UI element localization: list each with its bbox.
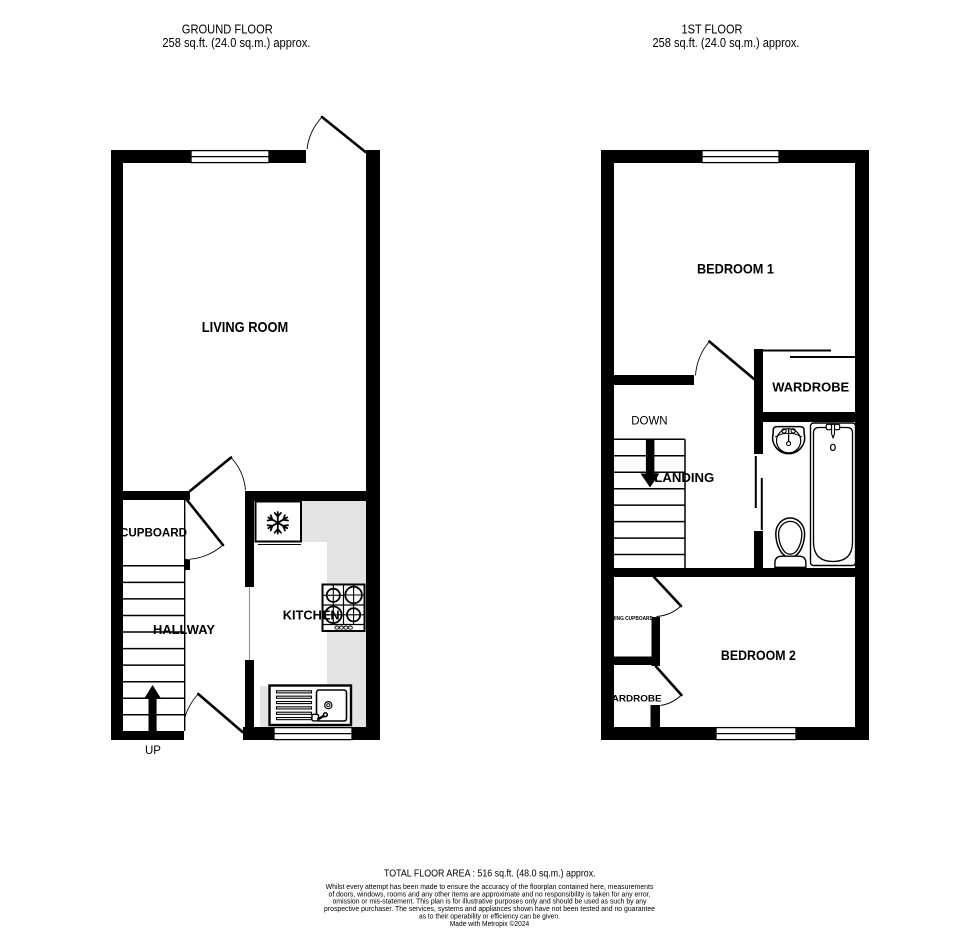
svg-text:1ST FLOOR: 1ST FLOOR: [682, 23, 743, 37]
svg-text:TOTAL FLOOR AREA : 516 sq.ft.: TOTAL FLOOR AREA : 516 sq.ft. (48.0 sq.m…: [384, 867, 596, 879]
svg-text:GROUND FLOOR: GROUND FLOOR: [182, 23, 273, 37]
svg-text:WARDROBE: WARDROBE: [772, 379, 849, 394]
svg-text:prospective purchaser. The ser: prospective purchaser. The services, sys…: [324, 906, 655, 913]
svg-text:UP: UP: [145, 745, 161, 757]
svg-text:DOWN: DOWN: [631, 416, 667, 428]
svg-text:Made with Metropix ©2024: Made with Metropix ©2024: [450, 920, 530, 928]
svg-text:LIVING ROOM: LIVING ROOM: [202, 319, 288, 336]
svg-text:omission or mis-statement. Thi: omission or mis-statement. This plan is …: [333, 899, 647, 906]
svg-text:HALLWAY: HALLWAY: [153, 623, 216, 637]
svg-text:KITCHEN: KITCHEN: [283, 608, 340, 622]
svg-text:WARDROBE: WARDROBE: [603, 693, 662, 704]
svg-text:of doors, windows, rooms and a: of doors, windows, rooms and any other i…: [329, 891, 651, 898]
svg-text:BEDROOM 2: BEDROOM 2: [721, 647, 796, 663]
svg-text:BEDROOM 1: BEDROOM 1: [697, 261, 774, 277]
svg-text:LANDING: LANDING: [654, 471, 714, 485]
svg-text:CUPBOARD: CUPBOARD: [120, 528, 187, 540]
svg-text:AIRING CUPBOARD: AIRING CUPBOARD: [607, 616, 653, 622]
svg-text:Whilst every attempt has been: Whilst every attempt has been made to en…: [326, 884, 654, 891]
svg-text:258 sq.ft. (24.0 sq.m.) approx: 258 sq.ft. (24.0 sq.m.) approx.: [162, 36, 310, 50]
svg-text:as to their operability or eff: as to their operability or efficiency ca…: [419, 913, 560, 920]
svg-text:258 sq.ft. (24.0 sq.m.) approx: 258 sq.ft. (24.0 sq.m.) approx.: [653, 36, 800, 50]
